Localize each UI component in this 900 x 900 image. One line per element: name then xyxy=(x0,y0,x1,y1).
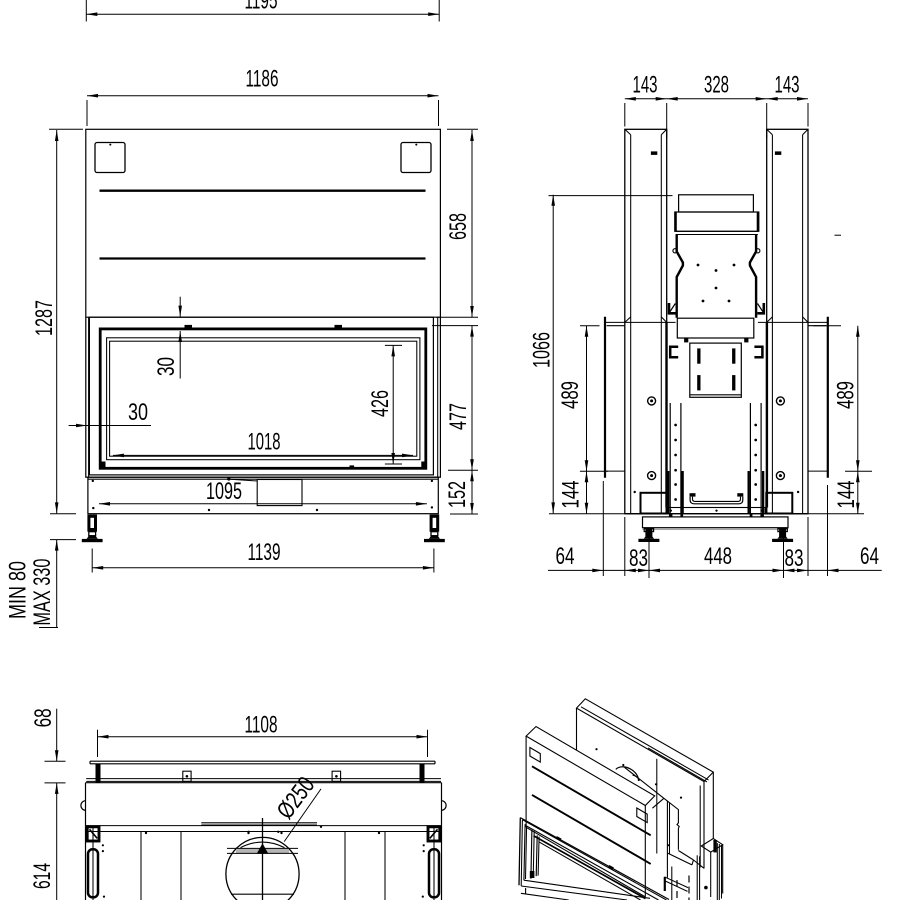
svg-text:426: 426 xyxy=(367,390,394,417)
svg-text:64: 64 xyxy=(860,543,879,570)
svg-text:1066: 1066 xyxy=(529,332,556,368)
svg-text:MAX 330: MAX 330 xyxy=(29,559,56,626)
svg-text:83: 83 xyxy=(629,545,648,572)
svg-text:MIN 80: MIN 80 xyxy=(5,561,32,619)
svg-text:30: 30 xyxy=(153,357,180,376)
svg-text:64: 64 xyxy=(556,543,575,570)
svg-text:1108: 1108 xyxy=(245,712,278,739)
svg-text:144: 144 xyxy=(833,481,860,509)
svg-text:152: 152 xyxy=(444,481,471,508)
svg-text:83: 83 xyxy=(785,545,804,572)
svg-text:477: 477 xyxy=(445,403,472,430)
svg-text:1139: 1139 xyxy=(248,539,281,566)
svg-text:1195: 1195 xyxy=(245,0,278,15)
svg-text:30: 30 xyxy=(128,399,148,426)
svg-text:1287: 1287 xyxy=(31,300,58,336)
svg-text:143: 143 xyxy=(633,72,658,99)
svg-text:1186: 1186 xyxy=(246,66,279,93)
svg-text:328: 328 xyxy=(704,72,729,99)
svg-text:489: 489 xyxy=(557,381,584,409)
svg-text:1018: 1018 xyxy=(248,429,281,456)
svg-text:614: 614 xyxy=(29,863,56,889)
svg-text:68: 68 xyxy=(30,708,57,727)
svg-text:489: 489 xyxy=(833,381,860,409)
svg-text:448: 448 xyxy=(704,543,732,570)
svg-text:1095: 1095 xyxy=(206,478,242,505)
svg-text:658: 658 xyxy=(445,213,472,240)
svg-text:144: 144 xyxy=(558,481,585,509)
svg-text:143: 143 xyxy=(775,72,800,99)
